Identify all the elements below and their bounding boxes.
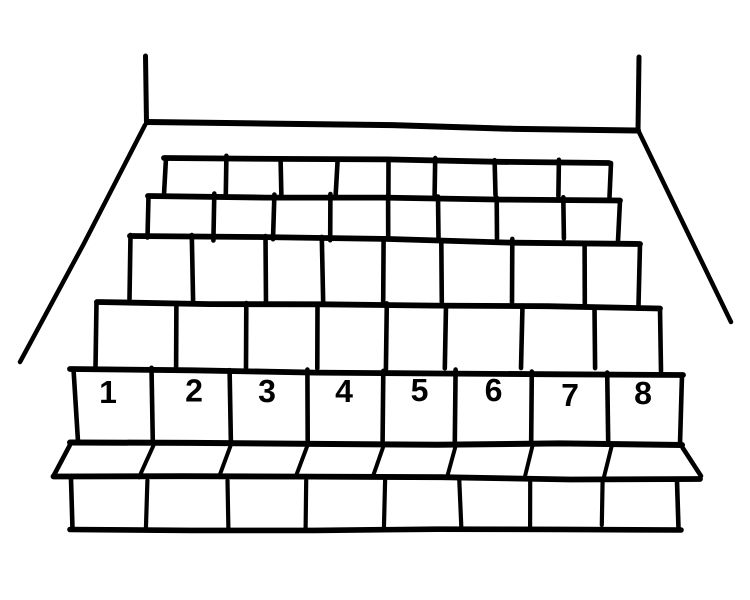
svg-text:3: 3 xyxy=(258,373,276,409)
svg-text:2: 2 xyxy=(185,372,203,408)
svg-text:4: 4 xyxy=(335,373,353,409)
svg-text:7: 7 xyxy=(561,377,579,413)
svg-text:6: 6 xyxy=(485,372,503,408)
svg-text:1: 1 xyxy=(99,374,117,410)
svg-text:8: 8 xyxy=(634,375,652,411)
svg-text:5: 5 xyxy=(411,372,429,408)
